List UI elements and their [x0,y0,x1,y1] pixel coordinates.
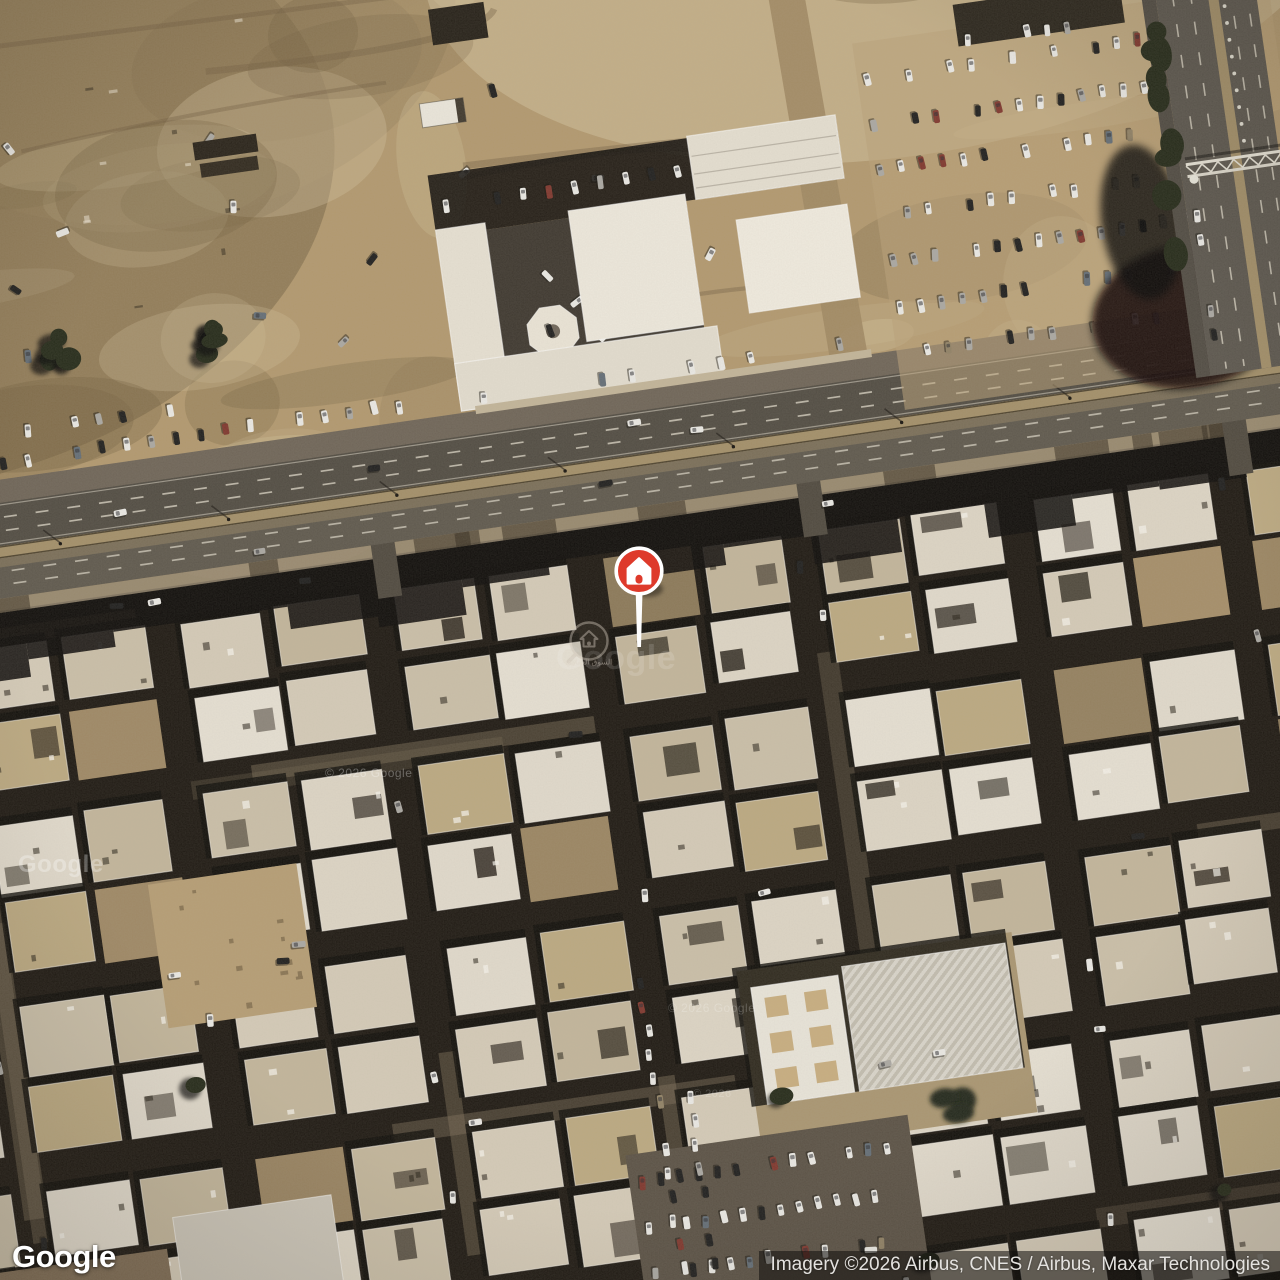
satellite-map[interactable]: GoogleGoogle© 2026 Google© 2026 Google© … [0,0,1280,1280]
map-watermark: Google [18,851,104,878]
map-viewport[interactable]: GoogleGoogle© 2026 Google© 2026 Google© … [0,0,1280,1280]
map-watermark: © 2026 [693,1088,732,1100]
map-watermark: © 2026 Google [668,1001,755,1015]
svg-text:السوق العقاري: السوق العقاري [566,658,612,667]
house-door [636,575,643,584]
map-watermark: © 2026 Google [325,766,412,780]
google-logo[interactable]: Google [12,1239,116,1275]
imagery-attribution: Imagery ©2026 Airbus, CNES / Airbus, Max… [759,1251,1280,1280]
